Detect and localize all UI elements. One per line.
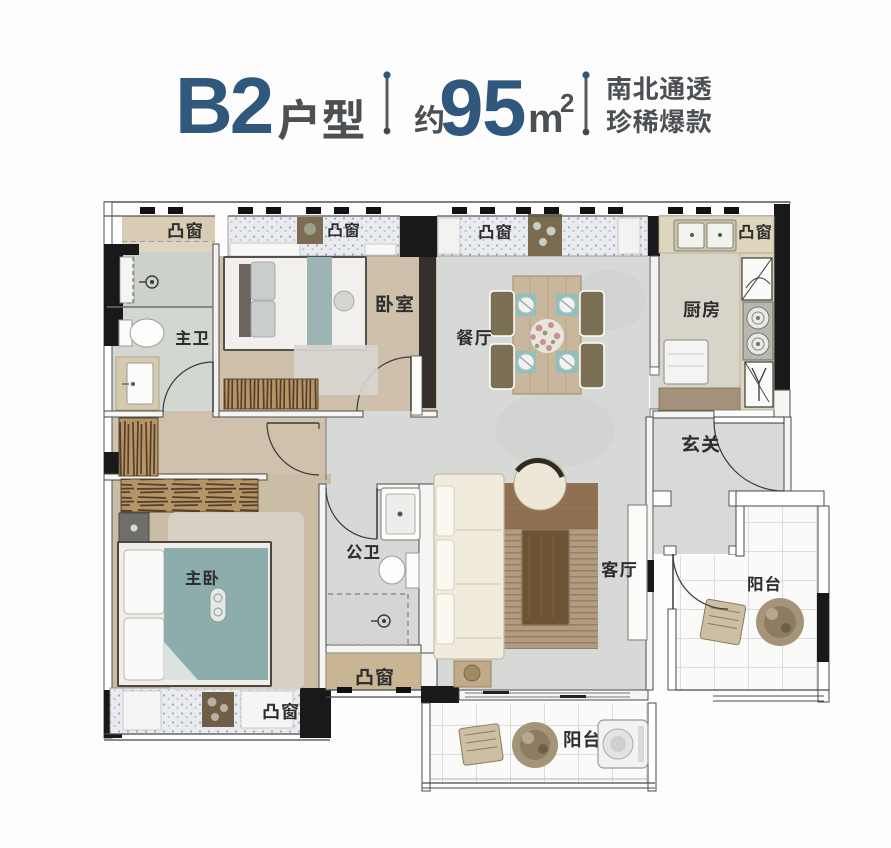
svg-text:2: 2 (560, 88, 574, 118)
svg-text:m: m (528, 97, 564, 141)
svg-text:B2: B2 (175, 61, 272, 150)
svg-text:95: 95 (439, 63, 525, 152)
